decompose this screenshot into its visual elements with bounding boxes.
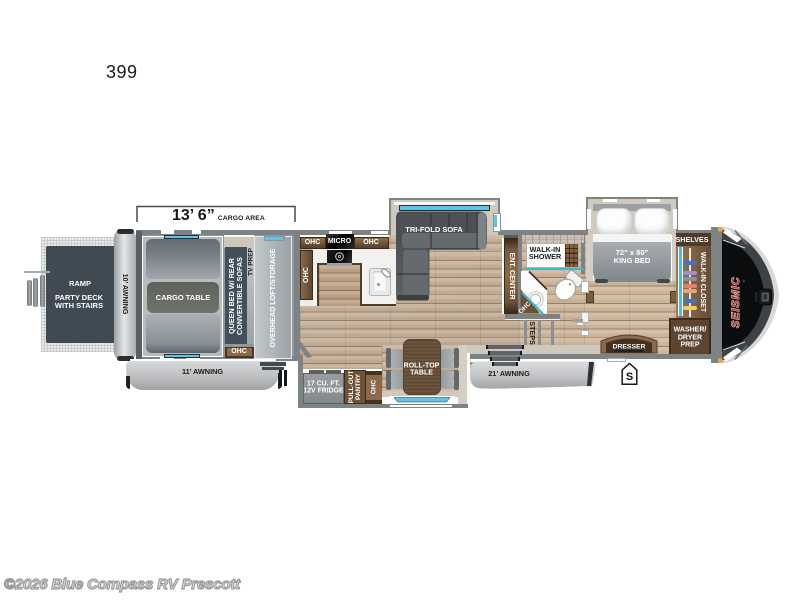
svg-text:21’ AWNING: 21’ AWNING: [488, 369, 530, 378]
svg-text:DRESSER: DRESSER: [613, 344, 646, 351]
svg-text:SEISMIC: SEISMIC: [730, 276, 742, 328]
svg-text:S: S: [626, 371, 633, 383]
